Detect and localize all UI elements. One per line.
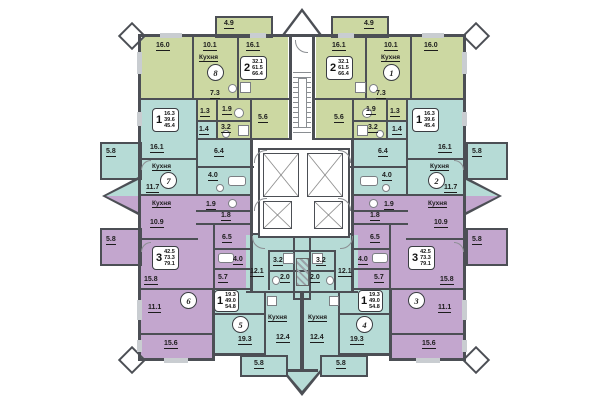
wall bbox=[352, 194, 464, 196]
kitchen-label: Кухня bbox=[428, 200, 447, 208]
bath-area-label: 3.2 bbox=[316, 257, 326, 266]
bath-area-label: 4.0 bbox=[382, 172, 392, 181]
wc-fixture bbox=[272, 276, 280, 285]
hall-area-label: 12.1 bbox=[250, 268, 264, 277]
apartment-type-card[interactable]: 2 32.1 61.5 66.4 bbox=[240, 56, 267, 80]
apartment-number-badge[interactable]: 7 bbox=[160, 172, 177, 189]
wall bbox=[334, 250, 336, 290]
window bbox=[137, 52, 142, 74]
card-total-area: 66.4 bbox=[252, 71, 263, 77]
wc-fixture bbox=[216, 184, 224, 192]
door-arc bbox=[254, 150, 267, 163]
kitchen-label: Кухня bbox=[381, 54, 400, 62]
card-total-area: 45.4 bbox=[424, 123, 435, 129]
room-area-label: 15.8 bbox=[440, 276, 454, 285]
apt6-balcony bbox=[100, 228, 142, 266]
elevator-shaft bbox=[263, 201, 292, 229]
storage-area-label: 5.6 bbox=[258, 114, 268, 123]
bathtub-fixture bbox=[228, 176, 246, 186]
wall bbox=[354, 210, 408, 212]
apt5-balcony bbox=[240, 355, 288, 377]
wc-area-label: 2.0 bbox=[280, 274, 290, 283]
apartment-number-badge[interactable]: 2 bbox=[428, 172, 445, 189]
room-area-label: 19.3 bbox=[238, 336, 252, 345]
stove-fixture bbox=[355, 82, 366, 93]
card-total-area: 54.8 bbox=[369, 304, 380, 310]
wall bbox=[213, 223, 215, 288]
wall bbox=[352, 120, 408, 122]
washer-fixture bbox=[283, 253, 294, 264]
wall bbox=[268, 250, 336, 252]
storage-area-label: 1.4 bbox=[392, 126, 402, 135]
apartment-number-badge[interactable]: 1 bbox=[383, 64, 400, 81]
wall bbox=[268, 250, 270, 290]
corridor-area-label: 5.7 bbox=[374, 274, 384, 283]
wall bbox=[196, 138, 292, 140]
apartment-number-badge[interactable]: 4 bbox=[356, 316, 373, 333]
wall bbox=[410, 36, 412, 98]
window bbox=[137, 340, 142, 352]
room-area-label: 12.4 bbox=[310, 334, 324, 343]
apartment-number-badge[interactable]: 5 bbox=[232, 316, 249, 333]
wall bbox=[293, 235, 295, 298]
window bbox=[160, 33, 182, 38]
room-area-label: 16.1 bbox=[438, 144, 452, 153]
wc-area-label: 2.0 bbox=[310, 274, 320, 283]
window bbox=[462, 52, 467, 74]
stove-fixture bbox=[267, 296, 277, 306]
balcony-area-label: 5.8 bbox=[336, 360, 346, 369]
wall bbox=[196, 223, 250, 225]
stove-fixture bbox=[329, 296, 339, 306]
apartment-number-badge[interactable]: 6 bbox=[180, 292, 197, 309]
window bbox=[462, 112, 467, 126]
bathtub-fixture bbox=[372, 253, 388, 263]
wall bbox=[300, 293, 304, 371]
wall bbox=[312, 34, 315, 140]
wall bbox=[196, 166, 254, 168]
wall bbox=[389, 288, 392, 360]
apartment-type-card[interactable]: 1 16.3 39.6 45.4 bbox=[412, 108, 439, 132]
right-bay-inner bbox=[464, 196, 498, 213]
room-area-label: 15.6 bbox=[422, 340, 436, 349]
apartment-type-card[interactable]: 3 42.5 73.3 79.1 bbox=[152, 246, 179, 270]
window bbox=[137, 300, 142, 320]
kitchen-label: Кухня bbox=[308, 314, 327, 322]
card-total-area: 45.4 bbox=[164, 123, 175, 129]
wall bbox=[264, 293, 266, 355]
hall-area-label: 7.3 bbox=[210, 90, 220, 99]
bath-area-label: 1.9 bbox=[366, 106, 376, 115]
bathtub-fixture bbox=[360, 176, 378, 186]
wall bbox=[352, 100, 354, 138]
wall bbox=[354, 268, 391, 270]
wall bbox=[389, 223, 391, 288]
balcony-area-label: 4.9 bbox=[364, 20, 374, 29]
wall bbox=[340, 313, 391, 315]
card-room-count: 1 bbox=[416, 115, 422, 126]
bath-area-label: 4.0 bbox=[233, 256, 243, 265]
balcony-area-label: 5.8 bbox=[106, 236, 116, 245]
wall bbox=[192, 36, 194, 98]
kitchen-label: Кухня bbox=[199, 54, 218, 62]
floor-plan: 4.9 16.0 10.1 Кухня 8 16.1 2 32.1 61.5 6… bbox=[0, 0, 600, 400]
wall bbox=[237, 36, 239, 98]
card-room-count: 3 bbox=[412, 253, 418, 264]
wc-area-label: 1.3 bbox=[200, 108, 210, 117]
balcony-area-label: 5.8 bbox=[254, 360, 264, 369]
wall bbox=[289, 34, 292, 140]
window bbox=[462, 300, 467, 320]
card-room-count: 1 bbox=[156, 115, 162, 126]
sink-fixture bbox=[234, 108, 244, 118]
wall bbox=[216, 100, 218, 138]
wall bbox=[350, 166, 408, 168]
right-bay-inner bbox=[464, 179, 498, 196]
door-arc bbox=[295, 40, 308, 53]
card-total-area: 79.1 bbox=[420, 261, 431, 267]
stove-fixture bbox=[240, 82, 251, 93]
hall-area-label: 6.4 bbox=[214, 148, 224, 157]
apartment-type-card[interactable]: 2 32.1 61.5 66.4 bbox=[326, 56, 353, 80]
wall bbox=[406, 238, 464, 240]
room-area-label: 16.0 bbox=[424, 42, 438, 51]
room-area-label: 15.6 bbox=[164, 340, 178, 349]
door-arc bbox=[254, 198, 267, 211]
wall bbox=[354, 223, 408, 225]
balcony-area-label: 5.8 bbox=[472, 236, 482, 245]
window bbox=[416, 358, 440, 363]
kitchen-label: Кухня bbox=[430, 163, 449, 171]
wall bbox=[196, 120, 252, 122]
storage-area-label: 5.6 bbox=[334, 114, 344, 123]
hall-area-label: 6.5 bbox=[370, 234, 380, 243]
elevator-shaft bbox=[263, 153, 299, 197]
card-room-count: 1 bbox=[361, 296, 367, 307]
apartment-type-card[interactable]: 1 19.3 49.0 54.8 bbox=[214, 290, 239, 312]
window bbox=[137, 112, 142, 126]
card-total-area: 54.8 bbox=[225, 304, 236, 310]
room-area-label: 15.8 bbox=[144, 276, 158, 285]
wall bbox=[138, 238, 198, 240]
window bbox=[422, 33, 444, 38]
room-area-label: 10.9 bbox=[150, 219, 164, 228]
wall bbox=[386, 100, 388, 138]
room-area-label: 11.7 bbox=[444, 184, 457, 193]
bathtub-fixture bbox=[218, 253, 234, 263]
card-total-area: 66.4 bbox=[338, 71, 349, 77]
stair-landing bbox=[298, 78, 307, 128]
sink-fixture bbox=[369, 199, 378, 208]
bottom-bay-inner bbox=[284, 370, 320, 391]
service-shaft bbox=[296, 258, 309, 286]
room-area-label: 16.0 bbox=[156, 42, 170, 51]
wall bbox=[312, 138, 408, 140]
card-room-count: 3 bbox=[156, 253, 162, 264]
bath-area-label: 4.0 bbox=[358, 256, 368, 265]
kitchen-label: Кухня bbox=[152, 200, 171, 208]
window bbox=[164, 358, 188, 363]
wc-area-label: 1.9 bbox=[384, 201, 394, 210]
window bbox=[250, 33, 266, 38]
apt3-balcony bbox=[466, 228, 508, 266]
apartment-type-card[interactable]: 1 16.3 39.6 45.4 bbox=[152, 108, 179, 132]
wc-area-label: 1.9 bbox=[206, 201, 216, 210]
wall bbox=[312, 98, 464, 100]
balcony-area-label: 5.8 bbox=[106, 148, 116, 157]
wall bbox=[250, 100, 252, 138]
kitchen-label: Кухня bbox=[268, 314, 287, 322]
apartment-number-badge[interactable]: 3 bbox=[408, 292, 425, 309]
window bbox=[462, 340, 467, 352]
room-area-label: 10.9 bbox=[434, 219, 448, 228]
storage-area-label: 1.4 bbox=[199, 126, 209, 135]
room-area-label: 10.1 bbox=[384, 42, 398, 51]
wall bbox=[138, 333, 215, 335]
balcony-area-label: 4.9 bbox=[224, 20, 234, 29]
corner-bay bbox=[462, 22, 490, 50]
hall-area-label: 12.1 bbox=[338, 268, 352, 277]
balcony-area-label: 5.8 bbox=[472, 148, 482, 157]
card-room-count: 2 bbox=[244, 63, 250, 74]
wall bbox=[213, 248, 250, 250]
room-area-label: 11.1 bbox=[438, 304, 451, 313]
wall bbox=[354, 248, 391, 250]
wall bbox=[196, 98, 198, 194]
kitchen-label: Кухня bbox=[152, 163, 171, 171]
apartment-type-card[interactable]: 3 42.5 73.3 79.1 bbox=[408, 246, 435, 270]
room-area-label: 16.1 bbox=[332, 42, 346, 51]
corridor-area-label: 5.7 bbox=[218, 274, 228, 283]
room-area-label: 11.1 bbox=[148, 304, 161, 313]
wall bbox=[213, 313, 264, 315]
washer-fixture bbox=[357, 125, 368, 136]
apartment-type-card[interactable]: 1 19.3 49.0 54.8 bbox=[358, 290, 383, 312]
room-area-label: 11.7 bbox=[146, 184, 159, 193]
wall bbox=[406, 98, 408, 194]
washer-fixture bbox=[238, 125, 249, 136]
hall-area-label: 7.3 bbox=[376, 90, 386, 99]
top-bay-inner bbox=[284, 12, 320, 36]
wall bbox=[389, 333, 466, 335]
sink-fixture bbox=[228, 84, 237, 93]
wc-fixture bbox=[382, 184, 390, 192]
apartment-number-badge[interactable]: 8 bbox=[207, 64, 224, 81]
wall bbox=[138, 34, 466, 37]
room-area-label: 10.1 bbox=[203, 42, 217, 51]
wall bbox=[213, 268, 250, 270]
bath-area-label: 4.0 bbox=[208, 172, 218, 181]
window bbox=[338, 33, 354, 38]
room-area-label: 12.4 bbox=[276, 334, 290, 343]
room-area-label: 16.1 bbox=[246, 42, 260, 51]
wall bbox=[309, 235, 311, 298]
card-total-area: 79.1 bbox=[164, 261, 175, 267]
room-area-label: 19.3 bbox=[350, 336, 364, 345]
bath-area-label: 3.2 bbox=[368, 124, 378, 133]
storage-area-label: 1.8 bbox=[370, 212, 380, 221]
bath-area-label: 1.9 bbox=[222, 106, 232, 115]
wc-fixture bbox=[326, 276, 334, 285]
bath-area-label: 3.2 bbox=[273, 257, 283, 266]
hall-area-label: 6.5 bbox=[222, 234, 232, 243]
storage-area-label: 1.8 bbox=[221, 212, 231, 221]
wall bbox=[138, 194, 252, 196]
room-area-label: 16.1 bbox=[150, 144, 164, 153]
bath-area-label: 3.2 bbox=[221, 124, 231, 133]
wc-area-label: 1.3 bbox=[390, 108, 400, 117]
card-room-count: 1 bbox=[217, 296, 223, 307]
card-room-count: 2 bbox=[330, 63, 336, 74]
sink-fixture bbox=[228, 199, 237, 208]
hall-area-label: 6.4 bbox=[378, 148, 388, 157]
